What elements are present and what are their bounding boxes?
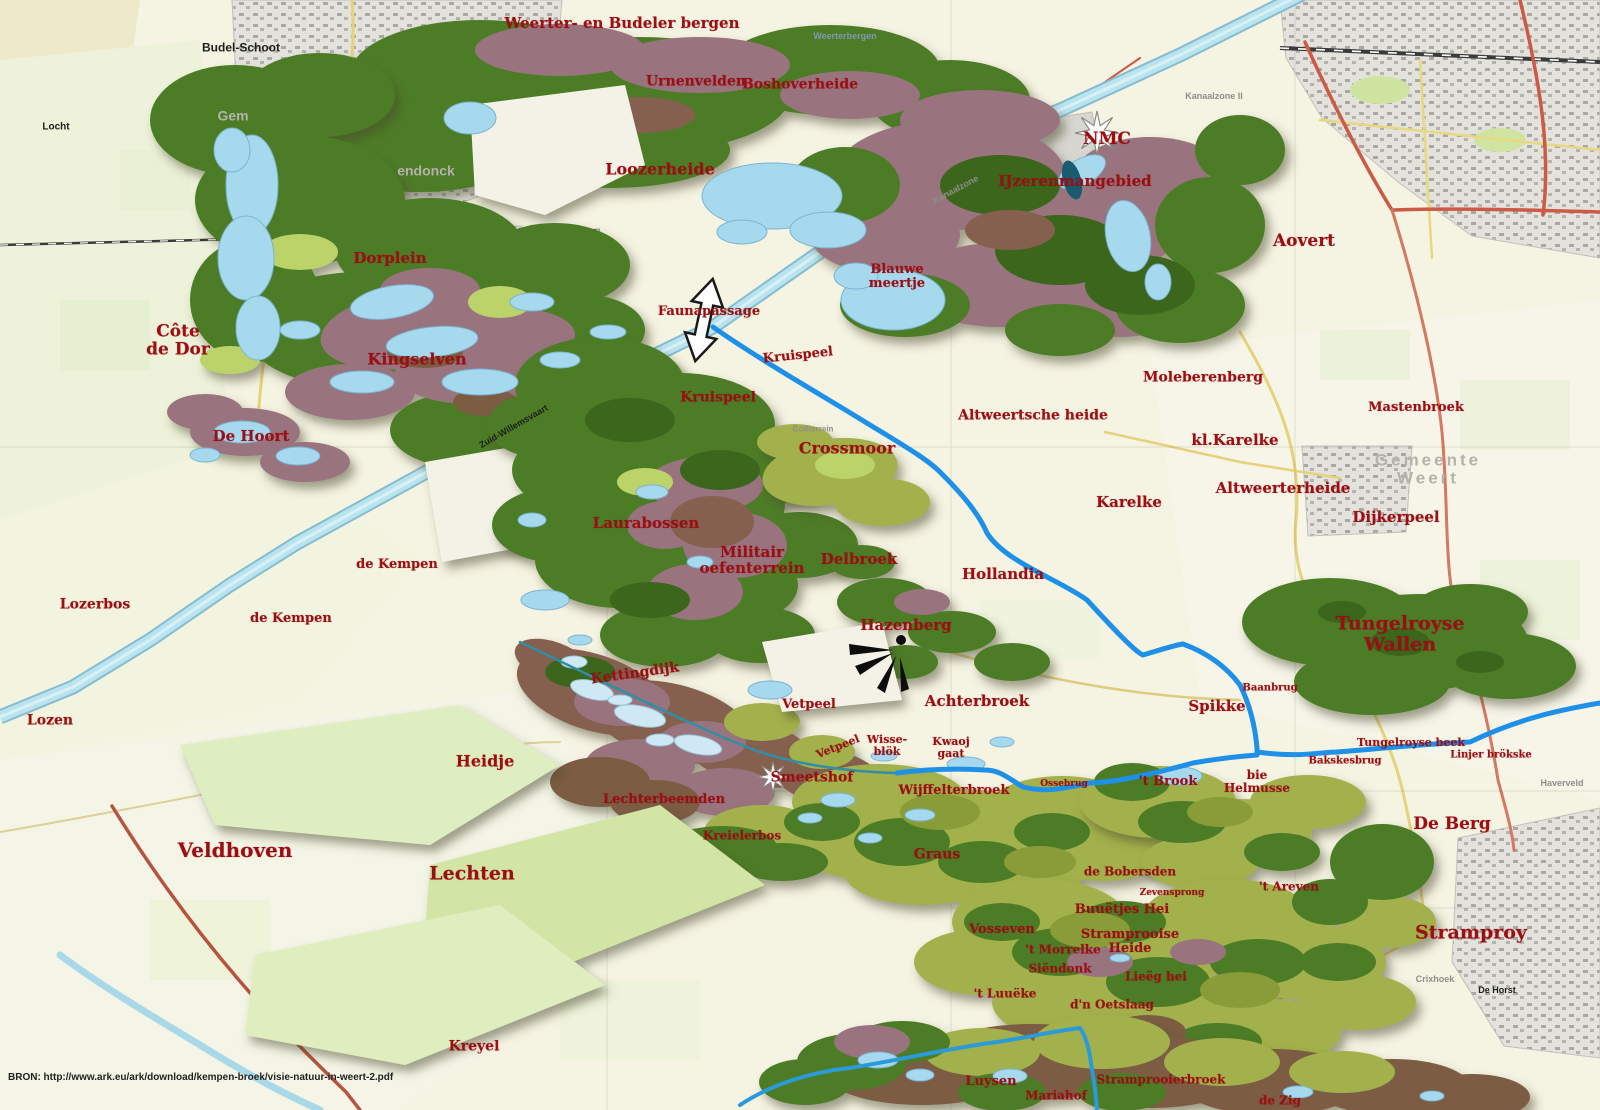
smeetshof-star-icon	[758, 762, 789, 793]
source-note: BRON: http://www.ark.eu/ark/download/kem…	[8, 1072, 393, 1083]
nmc-star-icon	[1075, 111, 1119, 155]
map-canvas: .f{fill:#4e7c27}.fd{fill:#3b661b}.h{fill…	[0, 0, 1600, 1110]
map-artwork: .f{fill:#4e7c27}.fd{fill:#3b661b}.h{fill…	[0, 0, 1600, 1110]
urban-altweerterheide	[1302, 446, 1412, 536]
